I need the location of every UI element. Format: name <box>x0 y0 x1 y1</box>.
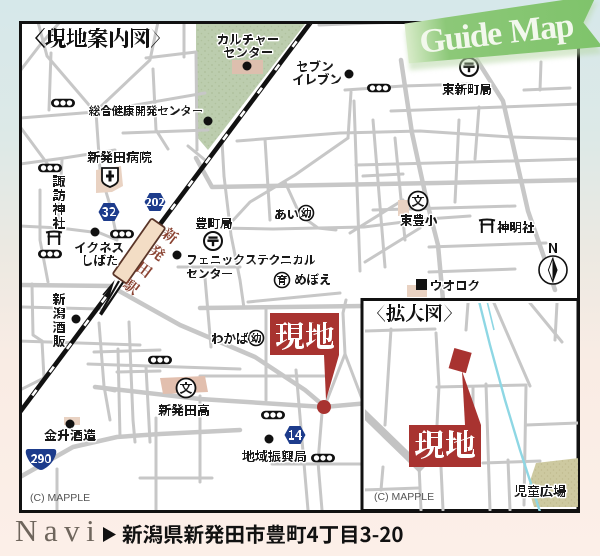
svg-text:(C) MAPPLE: (C) MAPPLE <box>374 491 434 503</box>
svg-text:Navi: Navi <box>15 513 101 548</box>
svg-text:(C) MAPPLE: (C) MAPPLE <box>30 492 90 504</box>
